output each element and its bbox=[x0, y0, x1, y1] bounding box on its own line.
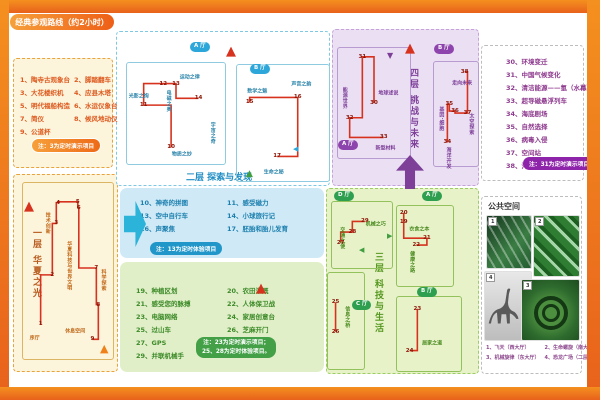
area-label: 太空探索 bbox=[468, 113, 475, 135]
area-label: 地球述说 bbox=[378, 90, 398, 97]
floor3-note-line2: 25、28为定时体验项目。 bbox=[202, 349, 270, 355]
route-stop-number: 32 bbox=[346, 115, 354, 121]
hall-badge-f3-d: D 厅 bbox=[334, 191, 354, 201]
gear-icon bbox=[534, 296, 568, 330]
floor3-hall-b-floorplan: 2324居家之道 bbox=[396, 296, 462, 372]
route-stop-number: 9 bbox=[91, 336, 95, 342]
route-stop-number: 14 bbox=[195, 95, 203, 101]
floor3-hall-a-floorplan: 19202122衣食之本健康之路 bbox=[396, 205, 454, 287]
route-stop-number: 23 bbox=[414, 306, 422, 312]
photo-life-spiral: 2 bbox=[533, 215, 580, 277]
list-item: 30、环境变迁 bbox=[506, 56, 593, 66]
area-label: 技术创新 bbox=[45, 212, 52, 234]
list-item: 13、空中自行车 bbox=[140, 210, 223, 220]
route-stop-number: 17 bbox=[273, 153, 281, 159]
caption-3: 3、机械旋律（东大厅） bbox=[486, 354, 539, 361]
flow-triangle-icon: ▶ bbox=[387, 233, 392, 240]
flow-triangle-icon: ▼ bbox=[387, 52, 393, 60]
hall-badge-f2-a: A 厅 bbox=[190, 42, 210, 52]
area-label: 健康之路 bbox=[409, 251, 416, 273]
list-item: 33、超导磁悬浮列车 bbox=[506, 95, 593, 105]
list-item: 5、明代福船构造 bbox=[20, 100, 70, 110]
floor1-note-badge: 注：3为定时演示项目 bbox=[31, 138, 101, 153]
list-item: 16、声聚焦 bbox=[140, 223, 223, 233]
public-space-title: 公共空间 bbox=[488, 201, 520, 212]
floor4-exhibit-list: 30、环境变迁31、中国气候变化32、清洁能源——氢（水幕）33、超导磁悬浮列车… bbox=[506, 56, 592, 170]
hall-badge-f2-b: B 厅 bbox=[250, 64, 270, 74]
page-title: 经典参观路线（约2小时） bbox=[10, 14, 114, 30]
list-item: 8、候风地动仪 bbox=[74, 113, 118, 123]
area-label: 华夏科技与世界文明 bbox=[66, 241, 73, 291]
area-label: 宇宙之奇 bbox=[210, 122, 217, 144]
list-item: 7、简仪 bbox=[20, 113, 70, 123]
flow-triangle-icon: ◀ bbox=[359, 247, 364, 254]
photo-number-badge: 1 bbox=[488, 217, 497, 226]
area-label: 能源世界 bbox=[342, 87, 349, 109]
floor1-exhibit-list: 1、陶寺古观象台2、脚踏翻车3、大花楼织机4、应县木塔5、明代福船构造6、水运仪… bbox=[20, 74, 112, 136]
route-stop-number: 4 bbox=[56, 200, 60, 206]
photo-feitian: 1 bbox=[486, 215, 532, 269]
area-label: 序厅 bbox=[30, 334, 40, 341]
compass-icon: ▲ bbox=[24, 200, 34, 213]
list-item: 2、脚踏翻车 bbox=[74, 74, 118, 84]
floor2-hall-a-floorplan: 1011121314光影之绚电磁之奥运动之律宇宙之奇物质之妙 bbox=[126, 62, 226, 165]
photo-number-badge: 3 bbox=[523, 281, 532, 290]
route-stop-number: 16 bbox=[294, 94, 302, 100]
area-label: 休息空间 bbox=[65, 327, 85, 334]
list-item: 21、感受您的脉搏 bbox=[136, 298, 223, 308]
floor2-hall-b-floorplan: 151617数学之魅声音之韵生命之秘 bbox=[236, 64, 330, 182]
list-item: 35、自然选择 bbox=[506, 121, 593, 131]
compass-icon: ▲ bbox=[256, 282, 266, 295]
route-path bbox=[237, 65, 329, 181]
route-stop-number: 36 bbox=[451, 108, 459, 114]
list-item: 9、公道杯 bbox=[20, 126, 70, 136]
route-stop-number: 27 bbox=[337, 240, 345, 246]
area-label: 海洋开发 bbox=[445, 147, 452, 169]
list-item: 17、胚胎和胎儿发育 bbox=[227, 223, 310, 233]
area-label: 衣食之本 bbox=[409, 226, 429, 233]
list-item: 26、芝麻开门 bbox=[227, 324, 314, 334]
route-stop-number: 3 bbox=[54, 220, 58, 226]
route-stop-number: 35 bbox=[445, 101, 453, 107]
compass-icon: ▲ bbox=[405, 42, 415, 55]
floor3-hall-c-floorplan: 2526信息之桥 bbox=[327, 272, 365, 370]
route-stop-number: 37 bbox=[464, 110, 472, 116]
route-stop-number: 30 bbox=[370, 100, 378, 106]
route-path bbox=[127, 63, 225, 164]
photo-mechanical-melody: 3 bbox=[521, 279, 580, 341]
area-label: 新型材料 bbox=[376, 145, 396, 152]
area-label: 生命之秘 bbox=[264, 168, 284, 175]
list-item: 22、人体保卫战 bbox=[227, 298, 314, 308]
list-item: 10、神奇的拼图 bbox=[140, 197, 223, 207]
list-item: 36、病毒入侵 bbox=[506, 134, 593, 144]
route-stop-number: 38 bbox=[461, 69, 469, 75]
area-label: 光影之绚 bbox=[129, 93, 149, 100]
route-stop-number: 1 bbox=[39, 321, 43, 327]
area-label: 声音之韵 bbox=[291, 80, 311, 87]
area-label: 居家之道 bbox=[422, 339, 442, 346]
photo-number-badge: 4 bbox=[486, 273, 495, 282]
list-item: 25、过山车 bbox=[136, 324, 223, 334]
list-item: 4、应县木塔 bbox=[74, 87, 118, 97]
area-label: 走向未来 bbox=[452, 79, 472, 86]
route-stop-number: 13 bbox=[172, 81, 180, 87]
list-item: 1、陶寺古观象台 bbox=[20, 74, 70, 84]
floor1-floorplan: 123456789技术创新华夏科技与世界文明科学探索序厅休息空间 bbox=[22, 182, 114, 360]
route-stop-number: 26 bbox=[332, 329, 340, 335]
list-item: 3、大花楼织机 bbox=[20, 87, 70, 97]
route-stop-number: 19 bbox=[400, 219, 408, 225]
hall-badge-f3-c: C 厅 bbox=[352, 300, 371, 310]
frame-right bbox=[587, 0, 600, 400]
route-stop-number: 12 bbox=[159, 81, 167, 87]
route-stop-number: 29 bbox=[361, 218, 369, 224]
route-stop-number: 10 bbox=[167, 144, 175, 150]
list-item: 34、海底剧场 bbox=[506, 108, 593, 118]
route-stop-number: 2 bbox=[50, 272, 54, 278]
hall-badge-f3-b: B 厅 bbox=[417, 287, 437, 297]
list-item: 14、小球旅行记 bbox=[227, 210, 310, 220]
area-label: 电磁之奥 bbox=[166, 90, 173, 112]
route-stop-number: 8 bbox=[96, 302, 100, 308]
frame-bottom bbox=[0, 387, 600, 400]
route-stop-number: 34 bbox=[444, 139, 452, 145]
caption-1: 1、飞天（西大厅） bbox=[486, 344, 539, 351]
area-label: 运动之律 bbox=[180, 74, 200, 81]
area-label: 基因·细胞 bbox=[438, 107, 445, 131]
photo-number-badge: 2 bbox=[535, 217, 544, 226]
route-stop-number: 6 bbox=[77, 205, 81, 211]
route-stop-number: 24 bbox=[406, 348, 414, 354]
floor4-note-badge: 注：31为定时演示项目 bbox=[523, 157, 595, 170]
list-item: 32、清洁能源——氢（水幕） bbox=[506, 82, 593, 92]
area-label: 交通之便 bbox=[339, 227, 346, 249]
public-space-captions: 1、飞天（西大厅） 2、生命螺旋（南大厅） 3、机械旋律（东大厅） 4、恐龙广场… bbox=[486, 344, 582, 361]
route-stop-number: 20 bbox=[400, 210, 408, 216]
list-item: 20、农田灌溉 bbox=[227, 285, 314, 295]
route-stop-number: 31 bbox=[359, 54, 367, 60]
poster-route-map: 经典参观路线（约2小时） 一层 华夏之光 二层 探索与发现 三层 科技与生活 四… bbox=[0, 0, 600, 400]
route-stop-number: 33 bbox=[380, 134, 388, 140]
route-stop-number: 15 bbox=[246, 99, 254, 105]
route-stop-number: 22 bbox=[412, 242, 420, 248]
list-item: 19、种植区划 bbox=[136, 285, 223, 295]
floor3-note-line1: 注：23为定时演示项目； bbox=[203, 340, 269, 346]
list-item: 6、水运仪象台 bbox=[74, 100, 118, 110]
list-item: 37、空间站 bbox=[506, 147, 593, 157]
route-stop-number: 7 bbox=[94, 265, 98, 271]
list-item: 31、中国气候变化 bbox=[506, 69, 593, 79]
route-stop-number: 11 bbox=[140, 102, 148, 108]
area-label: 科学探索 bbox=[101, 269, 108, 291]
flow-triangle-icon: ◀ bbox=[293, 146, 298, 153]
route-stop-number: 21 bbox=[423, 235, 431, 241]
area-label: 物质之妙 bbox=[172, 150, 192, 157]
floor3-note-badge: 注：23为定时演示项目； 25、28为定时体验项目。 bbox=[196, 337, 276, 358]
list-item: 23、电脑网络 bbox=[136, 311, 223, 321]
floor4-hall-b-floorplan: 3435363738走向未来基因·细胞太空探索海洋开发 bbox=[433, 61, 479, 167]
flow-triangle-icon: ▲ bbox=[246, 170, 253, 179]
route-stop-number: 25 bbox=[332, 299, 340, 305]
list-item: 11、感受磁力 bbox=[227, 197, 310, 207]
compass-icon: ▲ bbox=[226, 45, 236, 58]
list-item: 24、家居创意台 bbox=[227, 311, 314, 321]
hall-badge-f4-a: A 厅 bbox=[338, 140, 358, 150]
entrance-triangle-icon: ▲ bbox=[100, 343, 108, 354]
frame-left bbox=[0, 0, 9, 400]
area-label: 信息之桥 bbox=[344, 306, 351, 328]
hall-badge-f3-a: A 厅 bbox=[422, 191, 442, 201]
floor2-exhibit-list: 10、神奇的拼图11、感受磁力13、空中自行车14、小球旅行记16、声聚焦17、… bbox=[140, 197, 310, 233]
route-path bbox=[397, 297, 461, 371]
frame-top bbox=[0, 0, 600, 13]
route-stop-number: 28 bbox=[349, 229, 357, 235]
hall-badge-f4-b: B 厅 bbox=[434, 44, 454, 54]
floor3-hall-d-floorplan: 272829机械之巧交通之便 bbox=[331, 201, 393, 269]
area-label: 数学之魅 bbox=[247, 87, 267, 94]
floor2-note-badge: 注：13为定时体验项目 bbox=[150, 242, 222, 255]
